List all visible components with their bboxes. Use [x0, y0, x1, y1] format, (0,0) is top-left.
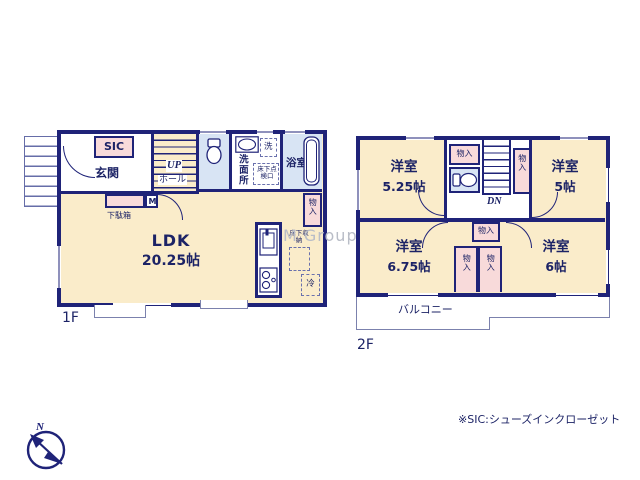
toilet-room-2f: [449, 167, 480, 193]
closet-label: 物入: [474, 226, 498, 235]
window: [356, 170, 361, 210]
stove-icon: [259, 267, 278, 293]
sic-note: ※SIC:シューズインクローゼット: [458, 414, 620, 427]
sic-closet: SIC: [94, 136, 134, 158]
floor-storage-box: [289, 247, 310, 271]
sink-icon: [235, 136, 259, 153]
watermark: M Group: [283, 227, 358, 245]
washer-space: 洗: [260, 138, 277, 157]
door-arc-room2: [532, 192, 558, 218]
room4-size: 6帖: [512, 260, 600, 274]
staircase-1f: UP ホール: [151, 134, 199, 194]
bay-step-2: [200, 300, 248, 309]
balcony-label: バルコニー: [398, 304, 453, 317]
washroom: 洗面所 洗 床下点検口: [229, 134, 283, 192]
door-arc-room1: [418, 190, 444, 216]
entrance-door-arc: [63, 146, 95, 178]
stairs-up-label: UP: [166, 160, 182, 172]
closet-label: 物入: [518, 154, 527, 172]
kitchen-counter: [255, 222, 282, 298]
closet-label: 物入: [486, 254, 495, 272]
window: [406, 136, 434, 141]
floor1-label: 1F: [62, 310, 79, 326]
bathroom: 浴室: [280, 134, 322, 192]
compass-north-label: N: [35, 421, 45, 433]
compass-icon: N: [18, 418, 74, 476]
closet-2f-mid: 物入: [472, 222, 500, 242]
sic-label: SIC: [96, 141, 132, 154]
entrance-label: 玄関: [95, 167, 119, 181]
closet-label: 物入: [451, 149, 478, 158]
floor2-label: 2F: [357, 337, 374, 353]
entry-approach-steps: [24, 136, 59, 207]
closet-2f-right: 物入: [513, 148, 531, 194]
bathtub-icon: [303, 136, 320, 186]
window: [57, 246, 62, 288]
stairs-hall-label: ホール: [158, 175, 187, 185]
fridge-space: 冷: [301, 274, 320, 296]
window: [257, 130, 273, 135]
meter-label: M: [149, 197, 157, 206]
closet-2f-top: 物入: [449, 144, 480, 165]
staircase-2f: [482, 140, 511, 195]
ldk-door-arc: [157, 194, 183, 220]
closet-2f-bl: 物入: [454, 246, 478, 292]
washer-label: 洗: [264, 143, 273, 153]
kitchen-sink-icon: [259, 228, 278, 256]
entrance-room: SIC 玄関: [61, 134, 154, 194]
ldk-size-label: 20.25帖: [116, 253, 226, 269]
toilet-icon: [204, 138, 224, 166]
stairs-down-label: DN: [487, 196, 501, 208]
door-arc-room3: [422, 222, 448, 248]
floor-hatch-label: 床下点検口: [256, 166, 278, 181]
washroom-label: 洗面所: [236, 154, 247, 186]
floor-hatch-box: 床下点検口: [253, 163, 279, 185]
bay-step-1: [94, 305, 146, 318]
window: [285, 130, 305, 135]
floorplan-1f: SIC 玄関 UP ホール 洗面所 洗 床下点検口 浴室: [57, 130, 327, 307]
closet-label: 物入: [462, 254, 471, 272]
toilet-room-1f: [196, 134, 232, 192]
toilet-icon: [452, 171, 478, 189]
room1-label: 洋室: [364, 160, 444, 176]
closet-2f-br: 物入: [478, 246, 502, 292]
shoe-cabinet: [105, 194, 145, 208]
closet-1f-label: 物入: [308, 198, 317, 216]
utility-zone-2f: 物入 DN 物入: [444, 140, 532, 221]
balcony-right: [489, 297, 610, 318]
window: [560, 136, 588, 141]
closet-1f: 物入: [303, 193, 322, 227]
shoe-cabinet-label: 下駄箱: [107, 211, 131, 220]
ldk-label: LDK: [116, 232, 226, 250]
floorplan-2f: 洋室 5.25帖 洋室 5帖 洋室 6.75帖 洋室 6帖 物入 DN 物入 物…: [356, 136, 610, 297]
room3-size: 6.75帖: [368, 260, 450, 274]
room2-label: 洋室: [525, 160, 605, 176]
window: [606, 168, 611, 202]
window: [200, 130, 226, 135]
window: [606, 250, 611, 284]
door-arc-room4: [506, 222, 532, 248]
fridge-label: 冷: [302, 280, 319, 290]
